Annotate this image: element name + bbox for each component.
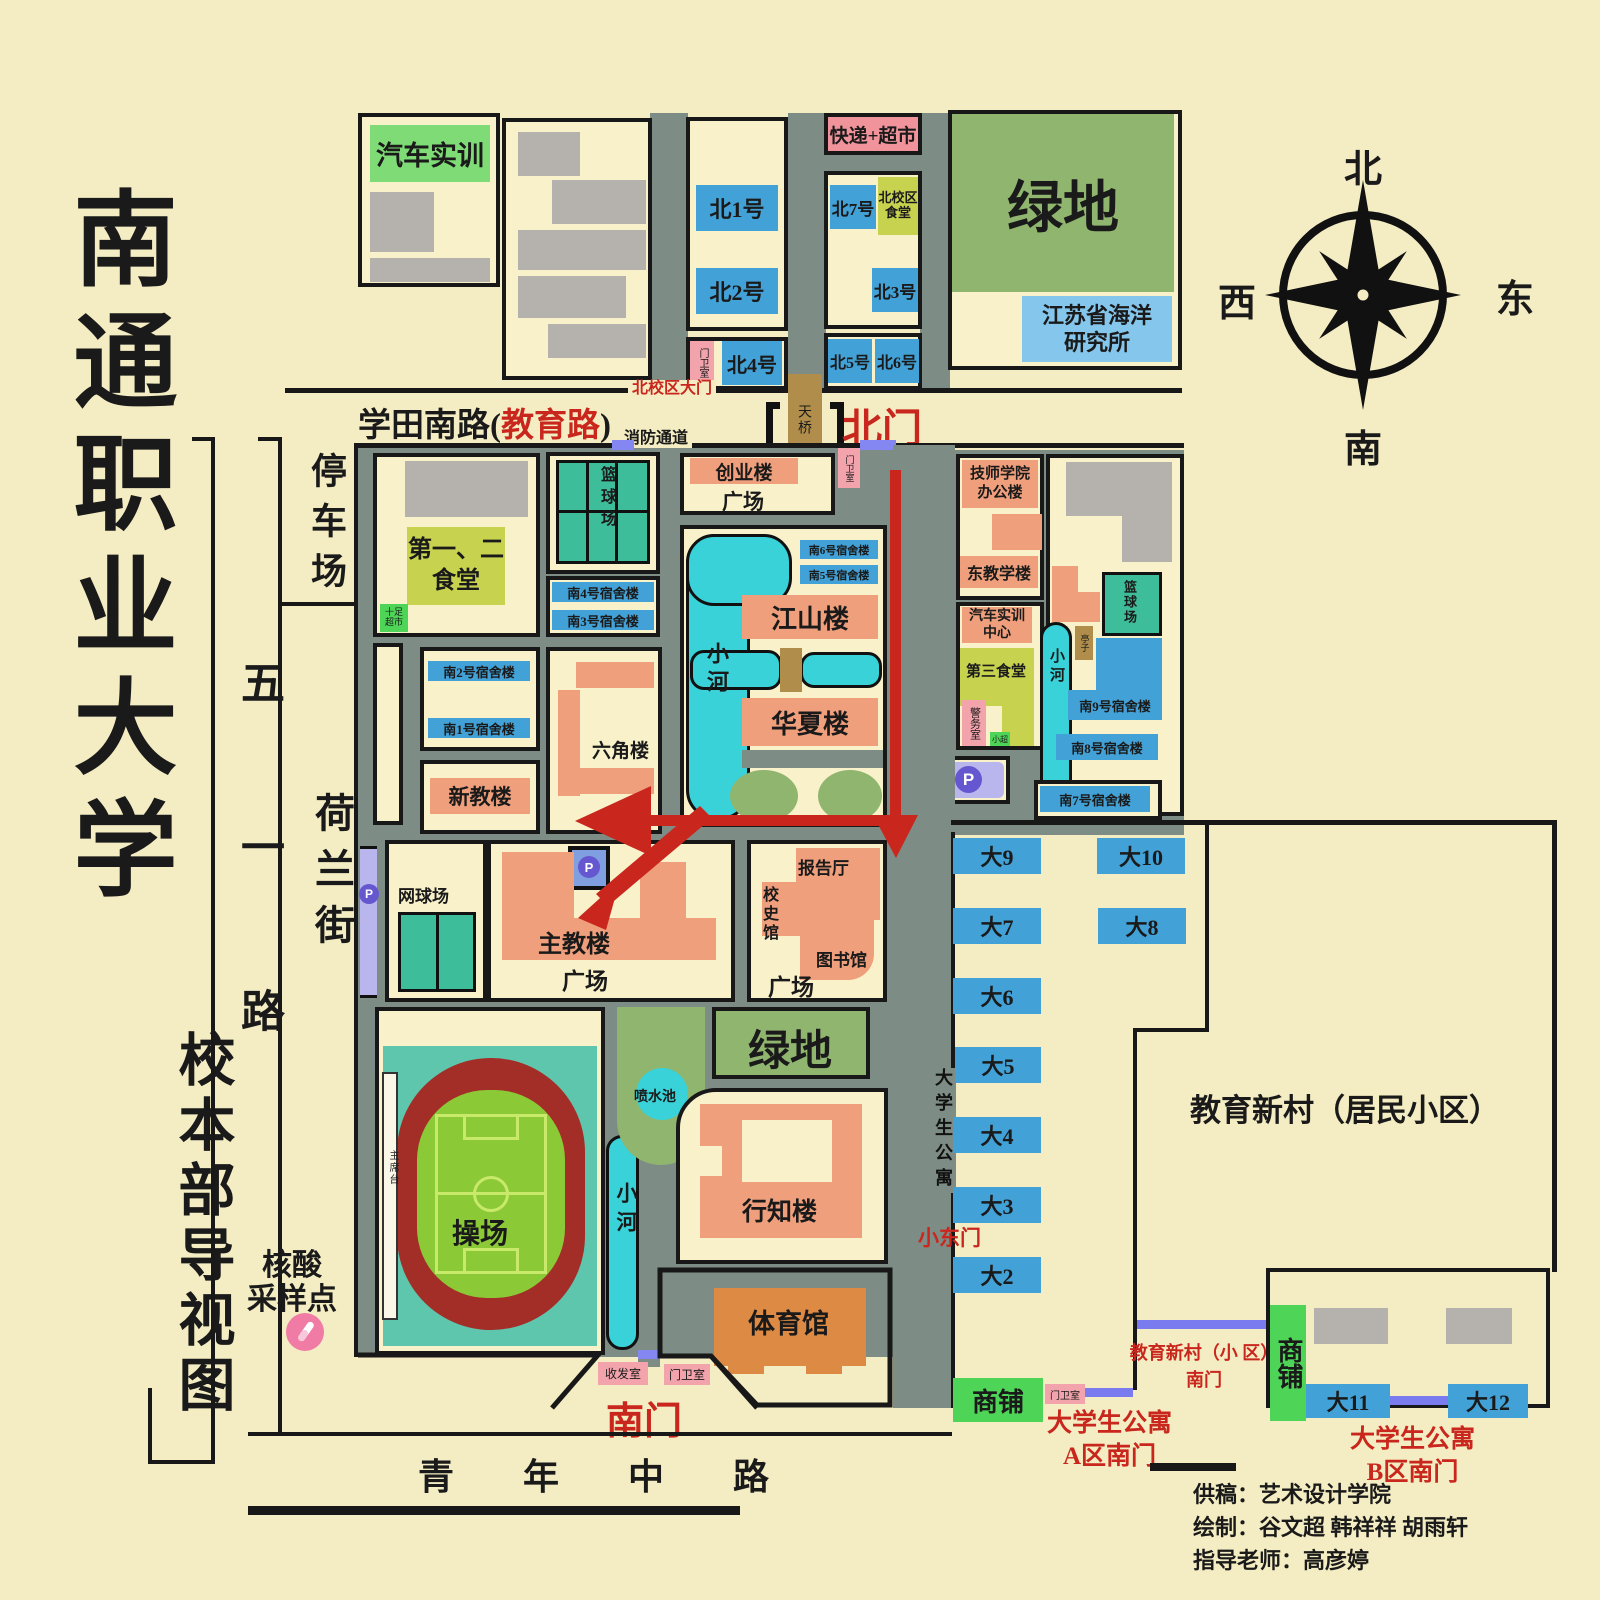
jiangshan-inner-road <box>742 750 883 768</box>
dorm-north-5: 北5号 <box>828 339 872 383</box>
residential-step-h <box>1133 1028 1209 1032</box>
shizu-market: 十足 超市 <box>380 604 408 632</box>
auto-training-annex-1 <box>370 192 434 252</box>
credits: 供稿：艺术设计学院 绘制：谷文超 韩祥祥 胡雨轩 指导老师：高彦婷 <box>1193 1478 1468 1577</box>
southwest-bracket-h <box>148 1460 215 1464</box>
jiangshan-label: 江山楼 <box>771 599 849 636</box>
school-title: 南通职业大学 <box>62 185 166 917</box>
east-salmon-step-1 <box>1052 566 1078 592</box>
mini-market: 小超 <box>990 732 1010 746</box>
dorm-north-3: 北3号 <box>872 268 918 312</box>
river-south-label: 小河 <box>611 1182 641 1240</box>
auto-training-annex-2 <box>370 258 490 282</box>
dorm-d4: 大4 <box>953 1117 1041 1153</box>
river-east-channel <box>800 652 882 688</box>
river-south <box>606 1135 639 1350</box>
xuetian-road-north-line <box>285 388 1182 393</box>
compass-west-label: 西 <box>1218 272 1256 327</box>
xincun-gate-label: 教育新村（小 区） 南门 <box>1128 1340 1280 1394</box>
dorm-d8-label: 大8 <box>1125 910 1158 942</box>
road-xuetian-part2: ) <box>600 408 611 444</box>
parking-icon-mini-label: P <box>585 860 594 875</box>
main-teaching-label: 主教楼 <box>538 924 610 959</box>
dorm-north-7-label: 北7号 <box>832 195 875 220</box>
parking-icon-east-label: P <box>963 770 974 790</box>
east-gray-building-1 <box>1066 462 1172 516</box>
dorm-d9-label: 大9 <box>980 840 1013 872</box>
dorm-s2-label: 南2号宿舍楼 <box>443 662 515 681</box>
dorm-s9-label: 南9号宿舍楼 <box>1079 696 1151 715</box>
gate-path-xincun <box>1137 1320 1268 1329</box>
south-gate-label: 南门 <box>606 1390 682 1445</box>
dorm-s8-label: 南8号宿舍楼 <box>1071 738 1143 757</box>
mail-room-label: 收发室 <box>605 1365 641 1382</box>
jiangshan-building: 江山楼 <box>742 595 878 639</box>
parking-icon-mini: P <box>578 856 600 878</box>
parking-icon-west: P <box>359 884 379 904</box>
north-green-field: 绿地 <box>952 114 1174 292</box>
dorm-north-2-label: 北2号 <box>709 275 764 307</box>
dorm-d11-label: 大11 <box>1327 1385 1370 1417</box>
dorm-s9-upper <box>1096 638 1162 690</box>
jishi-label-2: 办公楼 <box>977 484 1022 504</box>
green-oval-2 <box>818 770 882 822</box>
dorm-d12-label: 大12 <box>1466 1385 1510 1417</box>
xingzhi-notch <box>700 1146 722 1176</box>
gate-mark-south <box>638 1350 660 1359</box>
express-market-label: 快递+超市 <box>830 121 917 148</box>
mail-room: 收发室 <box>598 1362 648 1385</box>
hexagon-label: 六角楼 <box>592 736 649 763</box>
road-helan: 荷兰街 <box>302 792 360 960</box>
dorm-north-1-label: 北1号 <box>709 192 764 224</box>
nucleic-site-label-2: 采样点 <box>247 1274 337 1318</box>
main-campus-top-line <box>354 443 1184 448</box>
residential-step-v1 <box>1205 820 1209 1032</box>
jishi-building: 技师学院 办公楼 <box>962 460 1038 508</box>
credits-line-2: 绘制：谷文超 韩祥祥 胡雨轩 <box>1193 1511 1468 1544</box>
auto-center-label-2: 中心 <box>983 625 1011 643</box>
workshop-1 <box>518 132 580 176</box>
express-market: 快递+超市 <box>824 113 922 155</box>
dorm-north-7: 北7号 <box>830 185 876 229</box>
north-road-3 <box>920 113 950 390</box>
dorm-d2: 大2 <box>953 1257 1041 1293</box>
main-east-road <box>893 445 955 1408</box>
pavilion: 亭子 <box>1075 626 1093 660</box>
dorm-s8: 南8号宿舍楼 <box>1056 734 1158 760</box>
east-teaching-label: 东教学楼 <box>967 560 1031 584</box>
credits-divider <box>1150 1463 1236 1471</box>
canteen12: 第一、二 食堂 <box>407 527 505 605</box>
wuyi-road-line-west <box>211 437 215 1463</box>
workshop-2 <box>552 180 646 224</box>
huaxia-label: 华夏楼 <box>771 704 849 741</box>
parking-lot-bottom-line <box>280 602 358 606</box>
dorm-d3: 大3 <box>953 1187 1041 1223</box>
soccer-pitch <box>417 1090 565 1298</box>
north-road-1 <box>650 113 688 390</box>
police-room: 警务室 <box>962 700 986 746</box>
residential-top-line <box>951 820 1557 825</box>
wuyi-road-tick2 <box>258 437 282 441</box>
shizu-market-label-2: 超市 <box>385 618 403 628</box>
east-salmon-step-2 <box>1052 592 1100 622</box>
gate-path-a <box>1085 1388 1133 1397</box>
road-xuetian-part1: 学田南路( <box>358 408 501 444</box>
north-guard-room-label: 门卫室 <box>697 348 707 378</box>
shops-b: 商铺 <box>1270 1305 1306 1421</box>
compass-north-label: 北 <box>1344 138 1382 193</box>
nucleic-test-icon <box>286 1313 324 1351</box>
gate-b-label-1: 大学生公寓 <box>1350 1424 1475 1457</box>
southwest-bracket-v <box>148 1388 152 1464</box>
dorm-s6-label: 南6号宿舍楼 <box>809 542 870 558</box>
road-xuetian: 学田南路(教育路) <box>358 398 611 446</box>
gym-building-tab-2 <box>806 1360 842 1374</box>
qingnian-road-line-south <box>248 1506 740 1515</box>
parking-strip-west <box>360 846 377 998</box>
dorm-north-4: 北4号 <box>722 341 782 385</box>
dorm-s1: 南1号宿舍楼 <box>428 718 530 738</box>
dorm-d12: 大12 <box>1448 1384 1528 1418</box>
gym-building-tab-1 <box>728 1360 764 1374</box>
river-east-label: 小河 <box>1046 648 1067 686</box>
northgate-guard-room: 门卫室 <box>838 448 860 488</box>
dorm-north-2: 北2号 <box>696 268 778 314</box>
dorm-d8: 大8 <box>1098 908 1186 944</box>
gate-mark-northgate <box>860 440 896 450</box>
river-bridge <box>780 648 802 692</box>
dorm-s2: 南2号宿舍楼 <box>428 661 530 681</box>
dorm-north-5-label: 北5号 <box>830 349 870 373</box>
campus-map: 南通职业大学 校本部导视图 五一路 荷兰街 核酸 采样点 汽车实训 北1号 北2… <box>0 0 1600 1600</box>
dorm-north-4-label: 北4号 <box>727 349 777 378</box>
dorm-d7: 大7 <box>953 908 1041 944</box>
qingnian-road-line-north <box>248 1432 952 1436</box>
south-guard-room: 门卫室 <box>664 1364 710 1385</box>
xingzhi-label: 行知楼 <box>742 1192 817 1228</box>
south-guard-room-label: 门卫室 <box>669 1366 705 1383</box>
canteen12-label-1: 第一、二 <box>408 535 504 566</box>
dorm-d10: 大10 <box>1097 838 1185 874</box>
police-room-label: 警务室 <box>969 707 980 740</box>
dorm-d2-label: 大2 <box>980 1259 1013 1291</box>
auto-center-label-1: 汽车实训 <box>969 608 1025 626</box>
hexagon-building-bottom <box>576 768 654 794</box>
dorm-s4: 南4号宿舍楼 <box>552 582 654 602</box>
auto-training-label: 汽车实训 <box>376 134 484 173</box>
new-teaching-label: 新教楼 <box>449 781 512 811</box>
road-wuyi: 五一路 <box>226 660 290 1152</box>
dorm-s6: 南6号宿舍楼 <box>800 540 878 559</box>
dorm-d7-label: 大7 <box>980 910 1013 942</box>
dorm-north-6: 北6号 <box>875 339 919 383</box>
dorm-d11: 大11 <box>1306 1384 1390 1418</box>
tennis-label: 网球场 <box>398 882 449 907</box>
workshop-3 <box>518 230 646 270</box>
workshop-5 <box>548 324 646 358</box>
dorm-s7-label: 南7号宿舍楼 <box>1059 790 1131 809</box>
gate-mark-firelane <box>612 440 634 450</box>
basketball-west-label: 篮球场 <box>594 466 618 532</box>
xincun-gate-label-1: 教育新村（小 区） <box>1128 1340 1280 1367</box>
workshop-4 <box>518 276 626 318</box>
guard-room-a: 门卫室 <box>1045 1384 1085 1404</box>
west-strip-block <box>373 643 403 825</box>
basketball-east-label: 篮球场 <box>1120 580 1139 625</box>
dorm-s4-label: 南4号宿舍楼 <box>567 583 639 602</box>
residential-name: 教育新村（居民小区） <box>1190 1085 1500 1130</box>
main-teaching-wing-1 <box>502 852 574 924</box>
dorm-s1-label: 南1号宿舍楼 <box>443 719 515 738</box>
canteen12-annex <box>405 461 528 517</box>
main-plaza-label: 广场 <box>562 962 608 996</box>
jishi-label-1: 技师学院 <box>970 465 1030 485</box>
east-gray-building-2 <box>1122 516 1172 562</box>
dorm-s5: 南5号宿舍楼 <box>800 565 878 584</box>
canteen3-label: 第三食堂 <box>966 660 1026 681</box>
pavilion-label: 亭子 <box>1080 634 1089 652</box>
huaxia-building: 华夏楼 <box>742 698 878 746</box>
main-teaching-wing-2 <box>640 862 686 918</box>
history-hall-label: 校史馆 <box>756 886 780 943</box>
small-east-gate-label: 小东门 <box>918 1222 981 1252</box>
rostrum-label: 主席台 <box>385 1150 400 1186</box>
north-green-label: 绿地 <box>1007 163 1119 244</box>
green-oval-1 <box>730 770 798 822</box>
shops-a: 商铺 <box>953 1378 1043 1422</box>
rostrum <box>382 1072 398 1320</box>
ocean-institute-label-1: 江苏省海洋 <box>1042 302 1152 330</box>
parking-icon-west-label: P <box>365 887 373 901</box>
auto-training-building: 汽车实训 <box>370 125 490 182</box>
library-plaza-label: 广场 <box>768 968 814 1002</box>
northgate-guard-room-label: 门卫室 <box>845 455 854 482</box>
south-green-label: 绿地 <box>748 1017 832 1078</box>
chuangye-plaza-label: 广场 <box>722 486 764 516</box>
library-label: 图书馆 <box>816 946 867 971</box>
dorm-d4-label: 大4 <box>980 1119 1013 1151</box>
canteen12-label-2: 食堂 <box>432 566 480 597</box>
dorm-north-6-label: 北6号 <box>877 349 917 373</box>
xingzhi-courtyard <box>742 1120 832 1182</box>
dorm-d5: 大5 <box>955 1047 1041 1083</box>
chuangye-building: 创业楼 <box>690 458 798 484</box>
jishi-annex <box>992 514 1042 550</box>
shops-b-label: 商铺 <box>1275 1337 1301 1389</box>
gate-a-label-1: 大学生公寓 <box>1047 1408 1172 1441</box>
river-west-label: 小河 <box>700 642 732 698</box>
lecture-hall-label: 报告厅 <box>798 854 849 879</box>
dorm-s5-label: 南5号宿舍楼 <box>809 567 870 583</box>
gym-label: 体育馆 <box>748 1302 829 1341</box>
gate-path-b <box>1390 1396 1448 1405</box>
residential-step-v2 <box>1133 1028 1137 1390</box>
playground-label: 操场 <box>452 1212 508 1252</box>
footbridge-label: 天桥 <box>793 404 813 436</box>
tennis-court <box>398 912 476 992</box>
fountain-label: 喷水池 <box>634 1086 676 1106</box>
residential-right-line <box>1552 820 1557 1272</box>
dorm-d9: 大9 <box>953 838 1041 874</box>
compass-south-label: 南 <box>1344 418 1382 473</box>
shops-a-label: 商铺 <box>972 1382 1024 1419</box>
wuyi-road-tick1 <box>192 437 215 441</box>
dorm-d3-label: 大3 <box>980 1189 1013 1221</box>
dorm-d6-label: 大6 <box>980 980 1013 1012</box>
dorm-d10-label: 大10 <box>1119 840 1163 872</box>
new-teaching-building: 新教楼 <box>430 778 530 814</box>
north-guard-room: 门卫室 <box>690 341 714 385</box>
north-campus-gate-label: 北校区大门 <box>628 380 716 398</box>
north-canteen-label: 北校区食堂 <box>878 191 918 221</box>
credits-line-1: 供稿：艺术设计学院 <box>1193 1478 1468 1511</box>
chuangye-label: 创业楼 <box>715 458 772 485</box>
mini-market-label: 小超 <box>992 734 1008 745</box>
zone-b-building-2 <box>1446 1308 1512 1344</box>
ocean-institute-label-2: 研究所 <box>1064 329 1130 357</box>
dorm-s7: 南7号宿舍楼 <box>1040 786 1150 812</box>
dorm-s3: 南3号宿舍楼 <box>552 610 654 630</box>
dorm-s9: 南9号宿舍楼 <box>1068 690 1162 720</box>
compass-east-label: 东 <box>1496 268 1534 323</box>
guard-room-a-label: 门卫室 <box>1050 1387 1080 1402</box>
hexagon-building-top <box>576 662 654 688</box>
north-road-h <box>824 155 922 171</box>
compass-icon <box>1265 180 1461 410</box>
auto-center-building: 汽车实训 中心 <box>962 607 1032 643</box>
road-xuetian-red: 教育路 <box>501 408 600 444</box>
main-campus-west-line <box>354 443 358 1357</box>
zone-b-building-1 <box>1314 1308 1388 1344</box>
parking-icon-east: P <box>955 766 982 793</box>
parking-lot-label: 停车场 <box>300 452 352 602</box>
dorm-d5-label: 大5 <box>981 1049 1014 1081</box>
xincun-gate-label-2: 南门 <box>1128 1367 1280 1394</box>
north-canteen: 北校区食堂 <box>878 177 918 235</box>
dorm-d6: 大6 <box>953 978 1041 1014</box>
east-teaching-building: 东教学楼 <box>960 556 1038 588</box>
credits-line-3: 指导老师：高彦婷 <box>1193 1544 1468 1577</box>
road-qingnian: 青 年 中 路 <box>418 1448 799 1500</box>
ocean-institute: 江苏省海洋 研究所 <box>1022 296 1172 362</box>
dorm-north-1: 北1号 <box>696 185 778 231</box>
dorm-s3-label: 南3号宿舍楼 <box>567 611 639 630</box>
north-road-2 <box>788 113 826 390</box>
dorm-north-3-label: 北3号 <box>874 278 917 303</box>
